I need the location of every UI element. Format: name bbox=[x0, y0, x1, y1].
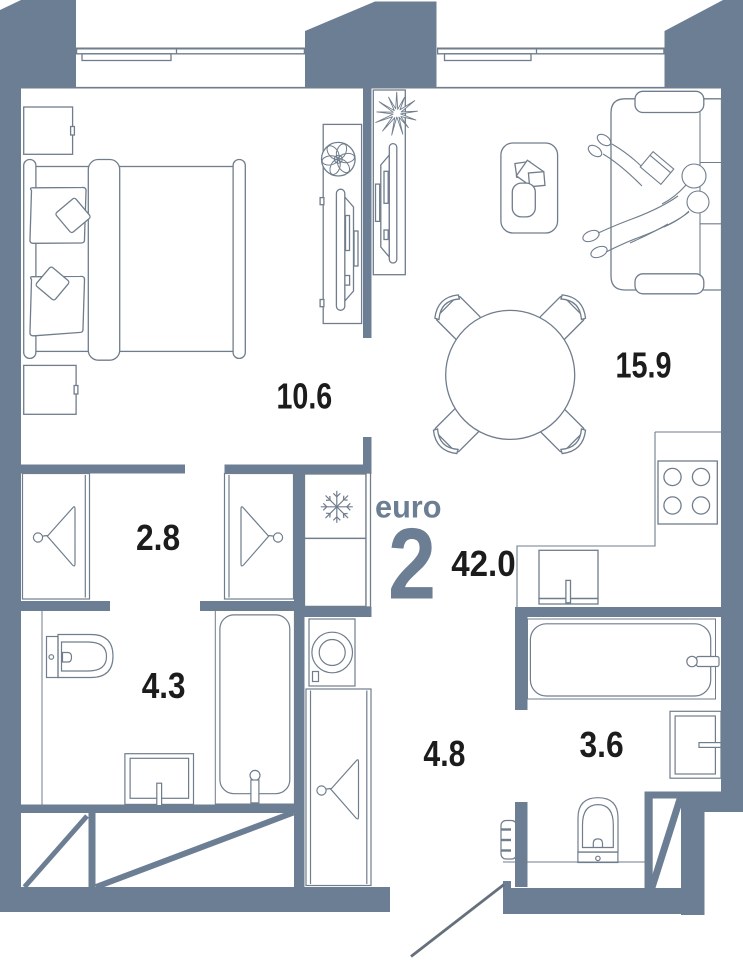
svg-text:4.8: 4.8 bbox=[423, 733, 465, 774]
svg-text:15.9: 15.9 bbox=[616, 344, 672, 385]
svg-text:3.6: 3.6 bbox=[580, 724, 624, 765]
svg-text:2: 2 bbox=[388, 509, 436, 621]
svg-text:2.8: 2.8 bbox=[136, 517, 180, 558]
svg-text:10.6: 10.6 bbox=[277, 375, 333, 416]
svg-text:42.0: 42.0 bbox=[451, 543, 516, 584]
svg-text:4.3: 4.3 bbox=[142, 665, 186, 706]
